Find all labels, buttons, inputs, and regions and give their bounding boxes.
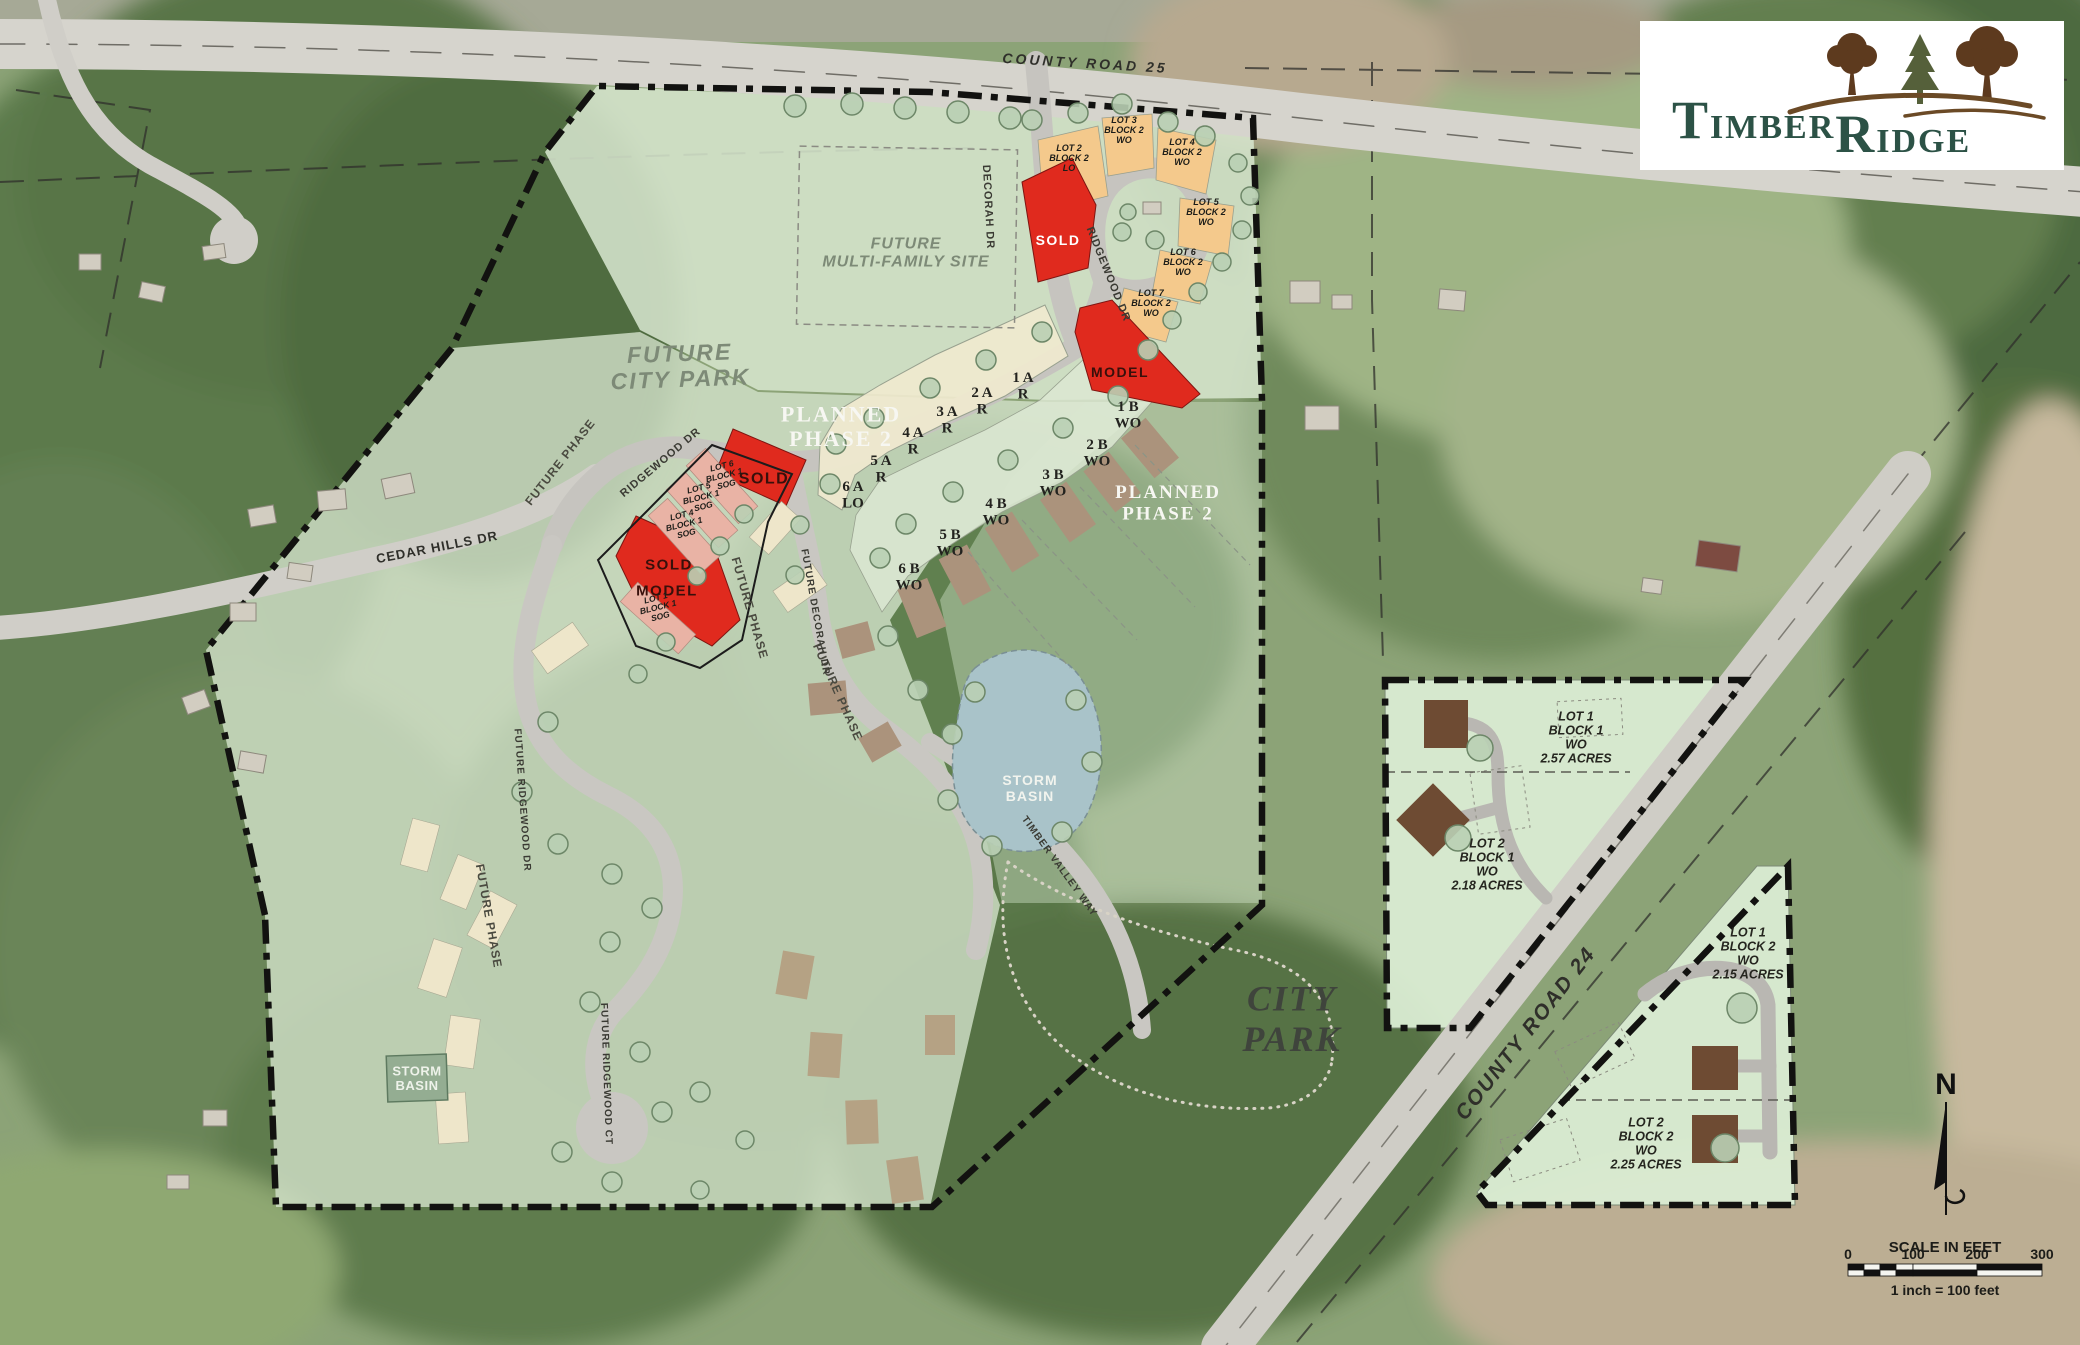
building-roof (1305, 406, 1339, 430)
tree-icon (1241, 187, 1259, 205)
tree-icon (1233, 221, 1251, 239)
area-label-storm-basin-southwest: STORMBASIN (392, 1063, 441, 1093)
area-label-storm-basin-pond: STORMBASIN (1002, 772, 1057, 804)
svg-text:PLANNEDPHASE 2: PLANNEDPHASE 2 (781, 401, 901, 451)
tree-icon (1068, 103, 1088, 123)
svg-text:SOLD: SOLD (645, 556, 693, 573)
tree-icon (1163, 311, 1181, 329)
lot-label-2b: 2 BWO (1084, 437, 1111, 470)
tree-icon (1467, 735, 1493, 761)
lot-label-5b: 5 BWO (937, 527, 964, 560)
svg-text:PLANNEDPHASE 2: PLANNEDPHASE 2 (1115, 482, 1221, 524)
tree-icon (786, 566, 804, 584)
tree-icon (1189, 283, 1207, 301)
tree-icon (1053, 418, 1073, 438)
svg-text:STORMBASIN: STORMBASIN (392, 1063, 441, 1093)
tree-icon (1445, 825, 1471, 851)
building-roof (287, 562, 313, 581)
tree-icon (1112, 94, 1132, 114)
tree-icon (841, 93, 863, 115)
area-label-city-park: CITYPARK (1241, 978, 1342, 1058)
tree-icon (791, 516, 809, 534)
tree-icon (629, 665, 647, 683)
tree-icon (1052, 822, 1072, 842)
rural-house-pad (1692, 1046, 1738, 1090)
building-roof (1290, 281, 1320, 303)
tree-icon (602, 864, 622, 884)
building-roof (79, 254, 101, 270)
svg-text:2 BWO: 2 BWO (1084, 437, 1111, 470)
tree-icon (982, 836, 1002, 856)
building-roof (203, 1110, 227, 1126)
lot-label-6a: 6 ALO (842, 479, 864, 512)
building-roof (1695, 540, 1740, 572)
tree-icon (1066, 690, 1086, 710)
svg-text:CITYPARK: CITYPARK (1241, 978, 1342, 1058)
svg-text:1 BWO: 1 BWO (1115, 399, 1142, 432)
tree-icon (894, 97, 916, 119)
timber-ridge-logo: TIMBERRIDGE (1640, 21, 2064, 170)
tree-icon (1022, 110, 1042, 130)
tree-icon (908, 680, 928, 700)
lot-label-4b: 4 BWO (983, 496, 1010, 529)
svg-text:3 BWO: 3 BWO (1040, 467, 1067, 500)
tree-icon (1213, 253, 1231, 271)
tree-icon (711, 537, 729, 555)
house-pad (808, 1032, 843, 1078)
tree-icon (736, 1131, 754, 1149)
svg-text:FUTURECITY PARK: FUTURECITY PARK (609, 338, 751, 395)
svg-text:MODEL: MODEL (1091, 364, 1149, 380)
scale-tick-200: 200 (1965, 1246, 1989, 1262)
tree-icon (1158, 112, 1178, 132)
tree-icon (602, 1172, 622, 1192)
area-label-planned-phase-2-east: PLANNEDPHASE 2 (1115, 482, 1221, 524)
building-roof (230, 603, 256, 621)
tree-icon (538, 712, 558, 732)
building-roof (202, 244, 226, 261)
building-roof (167, 1175, 189, 1189)
tree-icon (1113, 223, 1131, 241)
house-pad (925, 1015, 955, 1055)
area-label-planned-phase-2-west: PLANNEDPHASE 2 (781, 401, 901, 451)
status-label-sold-west: SOLD (645, 556, 693, 573)
tree-icon (896, 514, 916, 534)
scale-tick-0: 0 (1844, 1246, 1852, 1262)
tree-icon (548, 834, 568, 854)
scale-bar-segments (1848, 1264, 2042, 1276)
svg-text:6 BWO: 6 BWO (896, 561, 923, 594)
tree-icon (998, 450, 1018, 470)
status-label-sold-northeast: SOLD (1036, 232, 1081, 248)
tree-icon (690, 1082, 710, 1102)
plat-svg: COUNTY ROAD 25COUNTY ROAD 24CEDAR HILLS … (0, 0, 2080, 1345)
tree-icon (999, 107, 1021, 129)
tree-icon (820, 474, 840, 494)
scale-tick-100: 100 (1901, 1246, 1925, 1262)
building-roof (238, 751, 267, 773)
tree-icon (942, 724, 962, 744)
tree-icon (735, 505, 753, 523)
building-roof (1332, 295, 1352, 309)
tree-icon (943, 482, 963, 502)
building-roof (1143, 202, 1161, 214)
tree-icon (657, 633, 675, 651)
status-label-sold-middle: SOLD (739, 471, 789, 488)
lot-label-6b: 6 BWO (896, 561, 923, 594)
tree-icon (642, 898, 662, 918)
scale-bar-note: 1 inch = 100 feet (1891, 1282, 2000, 1298)
tree-icon (1229, 154, 1247, 172)
rural-house-pad (1424, 700, 1468, 748)
tree-icon (1146, 231, 1164, 249)
lot-label-1b: 1 BWO (1115, 399, 1142, 432)
tree-icon (878, 626, 898, 646)
tree-icon (1138, 340, 1158, 360)
tree-icon (870, 548, 890, 568)
tree-icon (1195, 126, 1215, 146)
tree-icon (1032, 322, 1052, 342)
tree-icon (976, 350, 996, 370)
svg-text:5 BWO: 5 BWO (937, 527, 964, 560)
building-roof (1641, 578, 1663, 595)
tree-icon (1711, 1134, 1739, 1162)
house-pad (886, 1156, 924, 1204)
svg-text:6 ALO: 6 ALO (842, 479, 864, 512)
north-arrow-label: N (1935, 1068, 1957, 1101)
scale-tick-300: 300 (2030, 1246, 2054, 1262)
building-roof (1438, 289, 1466, 311)
tree-icon (600, 932, 620, 952)
tree-icon (652, 1102, 672, 1122)
lot-label-3b: 3 BWO (1040, 467, 1067, 500)
tree-icon (691, 1181, 709, 1199)
tree-icon (1082, 752, 1102, 772)
tree-icon (784, 95, 806, 117)
svg-text:SOLD: SOLD (1036, 232, 1081, 248)
status-label-model-northeast: MODEL (1091, 364, 1149, 380)
house-pad (845, 1099, 879, 1144)
tree-icon (1120, 204, 1136, 220)
tree-icon (1727, 993, 1757, 1023)
svg-text:4 BWO: 4 BWO (983, 496, 1010, 529)
area-label-future-city-park: FUTURECITY PARK (609, 338, 751, 395)
tree-icon (580, 992, 600, 1012)
tree-icon (965, 682, 985, 702)
tree-icon (938, 790, 958, 810)
tree-icon (920, 378, 940, 398)
tree-icon (630, 1042, 650, 1062)
svg-text:SOLD: SOLD (739, 471, 789, 488)
tree-icon (552, 1142, 572, 1162)
building-roof (248, 505, 277, 527)
building-roof (317, 489, 347, 511)
site-plan-map: COUNTY ROAD 25COUNTY ROAD 24CEDAR HILLS … (0, 0, 2080, 1345)
svg-text:STORMBASIN: STORMBASIN (1002, 772, 1057, 804)
tree-icon (947, 101, 969, 123)
